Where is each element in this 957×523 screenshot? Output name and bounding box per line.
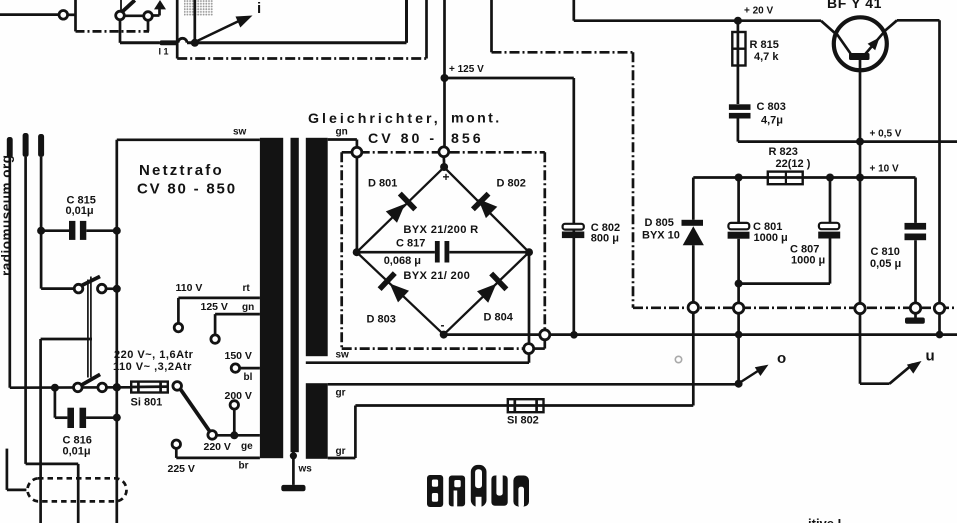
svg-text:CV 80 -: CV 80 -	[368, 131, 437, 147]
svg-text:220 V: 220 V	[204, 441, 231, 453]
svg-text:gn: gn	[336, 127, 348, 138]
svg-text:110 V~ ,3,2Atr: 110 V~ ,3,2Atr	[113, 361, 192, 373]
svg-text:D 804: D 804	[484, 312, 514, 324]
svg-text:+ 0,5 V: + 0,5 V	[870, 129, 902, 140]
svg-text:BYX 10: BYX 10	[642, 230, 680, 242]
svg-text:BYX 21/200 R: BYX 21/200 R	[403, 224, 478, 236]
svg-text:200 V: 200 V	[225, 390, 252, 402]
svg-text:o: o	[777, 350, 786, 367]
svg-text:BF Y 41: BF Y 41	[827, 0, 882, 11]
svg-text:D 805: D 805	[645, 217, 674, 229]
svg-text:R 815: R 815	[750, 39, 779, 51]
svg-text:0,01μ: 0,01μ	[63, 446, 91, 458]
svg-text:0,068 μ: 0,068 μ	[384, 255, 421, 267]
svg-text:4,7 k: 4,7 k	[754, 51, 779, 63]
svg-text:22(12 ): 22(12 )	[776, 158, 811, 170]
svg-text:0,05 μ: 0,05 μ	[870, 258, 901, 270]
svg-text:125 V: 125 V	[201, 301, 228, 313]
svg-text:Netztrafo: Netztrafo	[139, 162, 224, 179]
svg-text:1000 μ: 1000 μ	[791, 255, 825, 267]
svg-text:BYX 21/ 200: BYX 21/ 200	[403, 270, 470, 282]
svg-text:gr: gr	[336, 388, 346, 399]
svg-text:sw: sw	[336, 350, 350, 361]
svg-text:-: -	[441, 318, 445, 332]
svg-text:R 823: R 823	[769, 146, 798, 158]
svg-text:rt: rt	[243, 283, 251, 294]
svg-text:220 V~, 1,6Atr: 220 V~, 1,6Atr	[114, 349, 194, 361]
svg-text:0,01μ: 0,01μ	[66, 205, 94, 217]
svg-text:D 803: D 803	[367, 314, 396, 326]
svg-text:150 V: 150 V	[225, 350, 252, 362]
svg-text:D 802: D 802	[497, 178, 526, 190]
svg-text:D 801: D 801	[368, 178, 397, 190]
svg-text:u: u	[926, 348, 935, 365]
svg-text:1000 μ: 1000 μ	[754, 232, 788, 244]
svg-text:C 803: C 803	[757, 101, 786, 113]
svg-text:gr: gr	[336, 446, 346, 457]
svg-text:Gleichrichter,: Gleichrichter,	[308, 111, 441, 127]
svg-text:i: i	[257, 0, 261, 17]
svg-text:mont.: mont.	[451, 111, 502, 127]
svg-text:radiomuseum.org: radiomuseum.org	[0, 154, 14, 276]
svg-text:C 817: C 817	[396, 238, 425, 250]
svg-text:Si 801: Si 801	[131, 397, 163, 409]
svg-text:itive I: itive I	[808, 516, 841, 523]
svg-text:+ 20 V: + 20 V	[744, 6, 774, 17]
svg-text:C 810: C 810	[871, 246, 900, 258]
svg-text:225 V: 225 V	[168, 463, 195, 475]
svg-text:800 μ: 800 μ	[591, 233, 619, 245]
svg-text:CV 80 - 850: CV 80 - 850	[137, 181, 237, 198]
svg-text:+: +	[443, 170, 450, 184]
svg-text:gn: gn	[242, 302, 254, 313]
svg-text:856: 856	[451, 131, 484, 147]
svg-text:bl: bl	[244, 372, 253, 383]
svg-text:+ 10 V: + 10 V	[870, 164, 900, 175]
svg-text:ge: ge	[241, 441, 253, 452]
svg-text:sw: sw	[233, 127, 247, 138]
svg-text:br: br	[239, 461, 249, 472]
svg-text:110 V: 110 V	[176, 282, 203, 294]
svg-text:4,7μ: 4,7μ	[761, 115, 783, 127]
svg-text:I 1: I 1	[159, 47, 169, 57]
svg-text:SI 802: SI 802	[507, 415, 539, 427]
svg-text:+ 125 V: + 125 V	[449, 64, 484, 75]
svg-text:ws: ws	[298, 464, 313, 475]
